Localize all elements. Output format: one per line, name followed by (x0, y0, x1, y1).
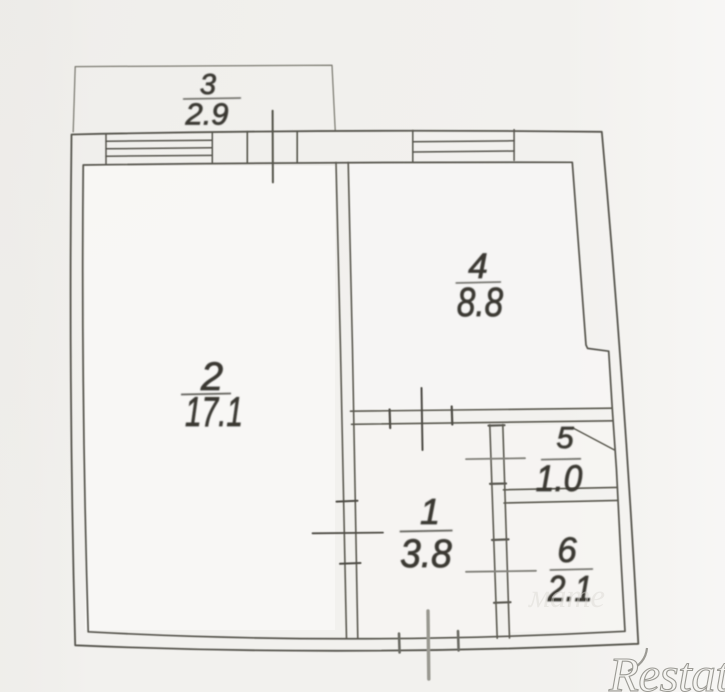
svg-text:1: 1 (420, 491, 440, 532)
svg-text:17.1: 17.1 (185, 388, 243, 435)
svg-text:6: 6 (557, 531, 577, 570)
svg-text:8.8: 8.8 (457, 279, 503, 325)
svg-text:Restate: Restate (608, 647, 725, 692)
svg-text:3.8: 3.8 (400, 532, 452, 577)
svg-text:мате: мате (528, 579, 605, 615)
svg-text:2.9: 2.9 (184, 97, 228, 132)
svg-text:5: 5 (556, 420, 574, 455)
svg-text:1.0: 1.0 (536, 459, 583, 500)
